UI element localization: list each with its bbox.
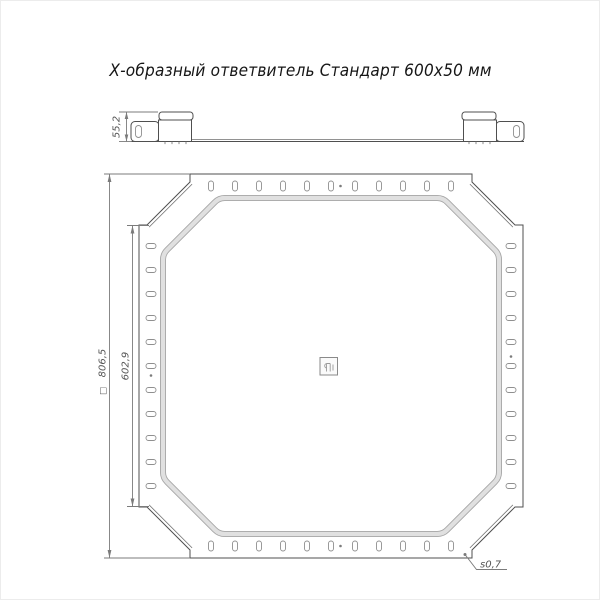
side-right-block (464, 120, 497, 142)
side-right-lip (462, 112, 496, 120)
side-left-ear-slot (136, 126, 142, 138)
dimension-side-height-label: 55,2 (112, 116, 123, 138)
side-left-lip (159, 112, 193, 120)
perforation-row-top (209, 181, 454, 191)
technical-drawing: 55,2 (1, 1, 600, 600)
perforation-row-right (506, 244, 516, 489)
side-right-ear-slot (514, 126, 520, 138)
thickness-callout-label: s0,7 (480, 560, 502, 571)
side-left-block (159, 120, 192, 142)
dimension-overall-label: 806,5 (98, 349, 109, 378)
dimension-flange-width: 602,9 (121, 226, 150, 507)
side-view: 55,2 (112, 112, 525, 144)
square-profile-symbol: □ (99, 387, 109, 395)
center-stamp (320, 358, 338, 376)
drawing-canvas: Х-образный ответвитель Стандарт 600х50 м… (0, 0, 600, 600)
dimension-overall: 806,5 □ (98, 174, 191, 558)
dimension-flange-width-label: 602,9 (121, 352, 132, 381)
perforation-row-bottom (209, 541, 454, 551)
perforation-row-left (146, 244, 156, 489)
thickness-callout: s0,7 (464, 553, 508, 571)
plan-view: 806,5 □ 602,9 s0,7 (98, 174, 524, 571)
